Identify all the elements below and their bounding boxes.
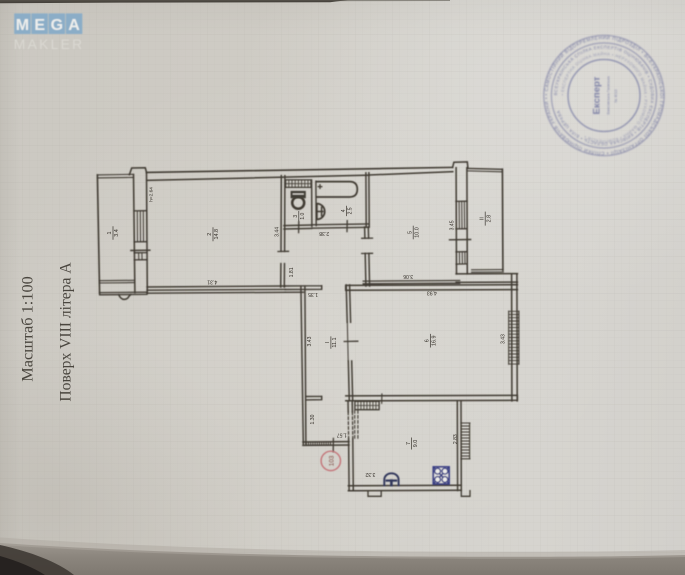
svg-text:2: 2 bbox=[207, 233, 213, 236]
svg-text:3.06: 3.06 bbox=[403, 273, 413, 279]
svg-text:2.83: 2.83 bbox=[453, 434, 459, 444]
svg-text:2.38: 2.38 bbox=[319, 230, 329, 236]
svg-text:G: G bbox=[51, 17, 63, 34]
svg-text:1.57: 1.57 bbox=[337, 432, 347, 438]
svg-text:3.43: 3.43 bbox=[500, 334, 506, 344]
svg-text:10.0: 10.0 bbox=[414, 227, 420, 238]
svg-text:4.93: 4.93 bbox=[427, 290, 437, 296]
svg-text:2.5: 2.5 bbox=[348, 207, 354, 214]
svg-text:1.35: 1.35 bbox=[308, 291, 318, 297]
svg-text:3.44: 3.44 bbox=[274, 227, 280, 237]
svg-text:3.4: 3.4 bbox=[114, 229, 120, 237]
svg-text:103: 103 bbox=[328, 455, 335, 466]
svg-text:2.8: 2.8 bbox=[486, 215, 492, 223]
svg-text:Поверх VIII літера А: Поверх VIII літера А bbox=[58, 262, 75, 402]
svg-text:1.30: 1.30 bbox=[310, 414, 316, 424]
svg-text:3.45: 3.45 bbox=[450, 220, 456, 230]
svg-text:7: 7 bbox=[406, 442, 412, 445]
svg-text:9.0: 9.0 bbox=[413, 440, 419, 448]
svg-text:5: 5 bbox=[407, 231, 413, 234]
svg-text:14.8: 14.8 bbox=[214, 229, 220, 240]
svg-text:A: A bbox=[68, 17, 80, 34]
svg-text:1.0: 1.0 bbox=[300, 213, 306, 220]
svg-text:16.9: 16.9 bbox=[432, 335, 438, 346]
svg-text:M: M bbox=[16, 17, 29, 34]
svg-text:3: 3 bbox=[293, 215, 299, 218]
svg-text:E: E bbox=[34, 17, 45, 34]
svg-text:4.31: 4.31 bbox=[207, 279, 217, 285]
svg-text:I: I bbox=[325, 342, 331, 344]
svg-text:Вансовська-Гаєвська: Вансовська-Гаєвська bbox=[606, 76, 611, 115]
svg-text:Експерт: Експерт bbox=[592, 76, 603, 114]
svg-text:Масштаб 1:100: Масштаб 1:100 bbox=[18, 276, 37, 381]
svg-text:h=2.64: h=2.64 bbox=[149, 187, 155, 202]
svg-text:II: II bbox=[479, 217, 485, 220]
svg-text:11.1: 11.1 bbox=[332, 338, 338, 348]
svg-text:3.43: 3.43 bbox=[307, 336, 313, 346]
svg-text:3.32: 3.32 bbox=[365, 471, 375, 477]
svg-text:1.81: 1.81 bbox=[289, 267, 295, 277]
svg-text:MAKLER: MAKLER bbox=[14, 37, 85, 52]
svg-text:№ 4013: № 4013 bbox=[614, 89, 618, 102]
svg-text:6: 6 bbox=[425, 339, 431, 342]
svg-text:4: 4 bbox=[341, 209, 347, 212]
svg-text:1: 1 bbox=[107, 232, 113, 235]
